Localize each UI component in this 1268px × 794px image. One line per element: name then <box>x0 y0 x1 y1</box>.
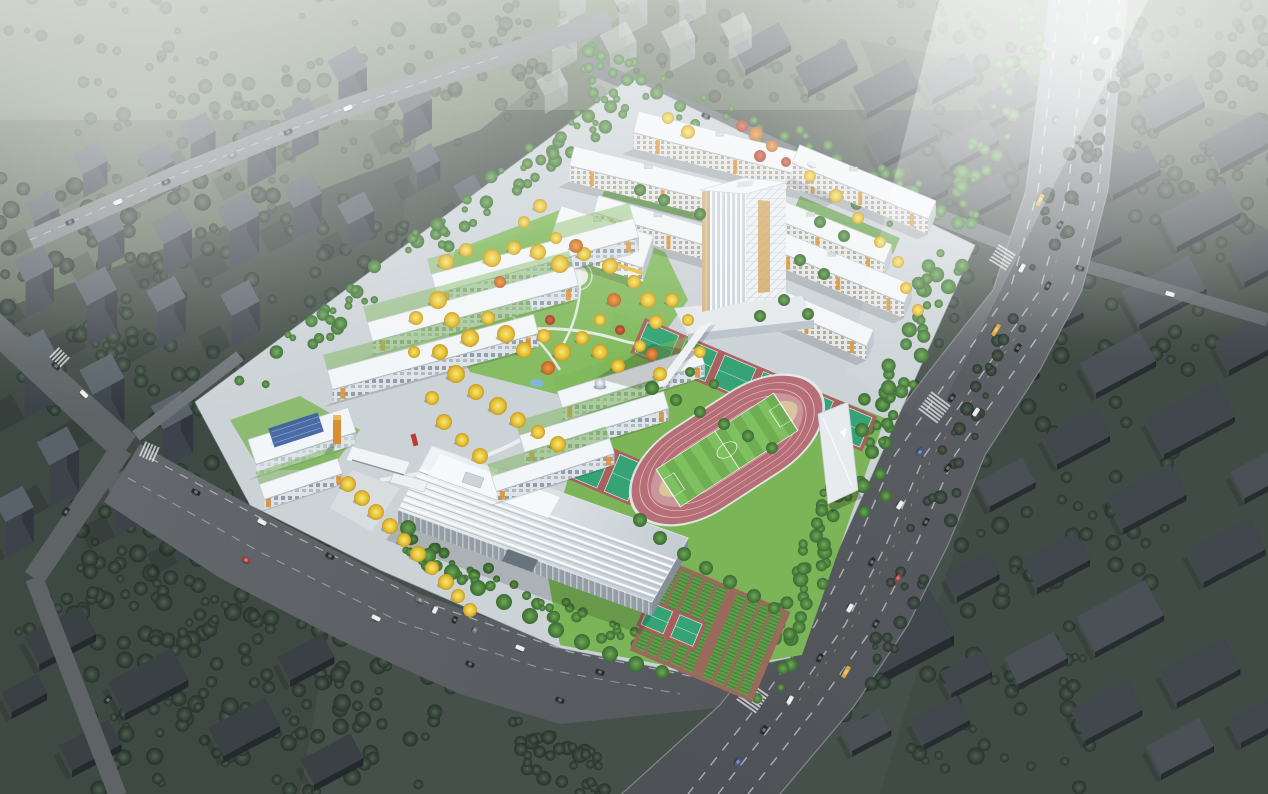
tree <box>295 726 308 739</box>
tree <box>723 575 737 589</box>
tree <box>1079 527 1093 541</box>
tree <box>865 677 879 691</box>
tree <box>221 697 239 715</box>
tree <box>155 594 172 611</box>
tree <box>108 561 121 574</box>
tree <box>120 590 130 600</box>
tree <box>617 632 625 640</box>
dome <box>595 378 606 389</box>
tree <box>797 562 810 575</box>
tree <box>83 666 100 683</box>
tree <box>375 687 384 696</box>
tree <box>893 616 907 630</box>
tree <box>282 708 291 717</box>
tree <box>768 602 780 614</box>
tree <box>1120 416 1132 428</box>
tree <box>1060 757 1069 766</box>
tree <box>1106 535 1122 551</box>
tree <box>1000 753 1009 762</box>
tree <box>548 611 560 623</box>
tree <box>586 777 596 787</box>
tree <box>86 586 99 599</box>
tree <box>514 717 523 726</box>
tree <box>1108 557 1124 573</box>
tree <box>928 493 937 502</box>
tree <box>1059 677 1069 687</box>
tree <box>210 595 219 604</box>
tree <box>809 529 823 543</box>
facade-orange-end <box>606 457 611 466</box>
facade-orange-end <box>695 368 700 378</box>
tree <box>522 608 538 624</box>
tree <box>117 636 131 650</box>
tree <box>907 596 920 609</box>
tree <box>633 513 647 527</box>
tree <box>184 575 196 587</box>
tree <box>315 676 330 691</box>
tree <box>333 719 349 735</box>
tree <box>369 698 382 711</box>
tree <box>938 445 948 455</box>
facade-orange-end <box>266 499 271 507</box>
tree <box>194 702 203 711</box>
tree <box>742 430 754 442</box>
tree <box>538 599 545 606</box>
tree <box>685 367 695 377</box>
tree <box>260 668 273 681</box>
tree <box>881 418 893 430</box>
tree <box>869 632 882 645</box>
scene-canvas <box>0 0 1268 794</box>
tree <box>553 743 565 755</box>
tree <box>550 436 566 452</box>
tree <box>150 635 162 647</box>
tree <box>972 364 982 374</box>
tree <box>970 381 981 392</box>
tree <box>510 412 526 428</box>
tree <box>883 642 893 652</box>
tree <box>1010 565 1019 574</box>
tree <box>376 718 387 729</box>
tree <box>425 391 439 405</box>
tree <box>116 575 124 583</box>
tree <box>116 651 133 668</box>
tree <box>355 712 371 728</box>
tree <box>397 533 411 547</box>
tree <box>272 774 283 785</box>
tree <box>777 662 789 674</box>
tree <box>1079 654 1087 662</box>
tree <box>747 589 761 603</box>
tree <box>611 359 625 373</box>
tree <box>918 574 929 585</box>
tree <box>951 430 957 436</box>
tree <box>340 476 356 492</box>
tree <box>800 585 808 593</box>
tree <box>677 547 691 561</box>
tree <box>1026 761 1036 771</box>
tree <box>221 601 230 610</box>
tree <box>694 406 706 418</box>
tree <box>194 608 206 620</box>
tree <box>545 603 554 612</box>
tree <box>944 514 958 528</box>
tree <box>204 455 220 471</box>
tree <box>489 397 507 415</box>
facade-orange-end <box>500 491 505 500</box>
tree <box>855 423 869 437</box>
tree <box>470 580 486 596</box>
tree <box>155 728 164 737</box>
tree <box>873 654 882 663</box>
tree <box>594 762 603 771</box>
tree <box>960 602 976 618</box>
tree <box>967 747 984 764</box>
tree <box>954 538 969 553</box>
tree <box>129 545 147 563</box>
tree <box>800 598 813 611</box>
tree <box>548 622 564 638</box>
tree <box>985 363 993 371</box>
tree <box>709 379 719 389</box>
facade-orange-end <box>659 412 664 422</box>
tree <box>252 633 263 644</box>
tree <box>352 701 363 712</box>
tree <box>210 657 223 670</box>
tree <box>206 676 218 688</box>
tree <box>991 516 1009 534</box>
tree <box>241 655 253 667</box>
tree <box>152 773 163 784</box>
tree <box>451 589 465 603</box>
facade-orange-end <box>340 388 345 399</box>
tree <box>574 634 590 650</box>
tree <box>301 699 312 710</box>
tree <box>1035 416 1051 432</box>
tree <box>976 529 985 538</box>
tree <box>330 666 347 683</box>
tree <box>533 746 546 759</box>
tree <box>201 597 210 606</box>
tree <box>858 393 871 406</box>
tree <box>163 570 178 585</box>
tree <box>354 490 370 506</box>
tree <box>177 707 193 723</box>
tree <box>310 729 325 744</box>
tree <box>1180 362 1195 377</box>
tree <box>1109 396 1123 410</box>
tree <box>164 698 172 706</box>
tree <box>602 646 618 662</box>
tree <box>766 442 778 454</box>
tree <box>952 488 962 498</box>
tree <box>1088 510 1098 520</box>
tree <box>421 732 430 741</box>
tree <box>1059 383 1067 391</box>
tree <box>996 583 1009 596</box>
tree <box>210 615 219 624</box>
tree <box>528 735 538 745</box>
tree <box>872 644 878 650</box>
tree <box>468 384 484 400</box>
tree <box>655 665 669 679</box>
tree <box>877 676 890 689</box>
tree <box>653 367 667 381</box>
tree <box>15 628 23 636</box>
tree <box>134 582 148 596</box>
tree <box>1061 472 1072 483</box>
tree <box>971 433 978 440</box>
tree <box>1014 702 1028 716</box>
tree <box>129 601 139 611</box>
tree <box>187 644 201 658</box>
tree <box>940 763 950 773</box>
tree <box>718 418 730 430</box>
tree <box>969 725 977 733</box>
tree <box>880 490 892 502</box>
tree <box>61 593 73 605</box>
tree <box>427 704 442 719</box>
tree <box>606 631 616 641</box>
tree <box>1072 780 1086 794</box>
tree <box>410 546 426 562</box>
tree <box>485 581 496 592</box>
tree <box>238 643 251 656</box>
tree <box>531 425 545 439</box>
tree <box>403 731 418 746</box>
tree <box>455 433 469 447</box>
tree <box>178 627 188 637</box>
tree <box>333 694 351 712</box>
tree <box>777 684 784 691</box>
tree <box>541 361 555 375</box>
tree <box>263 681 276 694</box>
tree <box>1057 495 1067 505</box>
tree <box>1132 563 1146 577</box>
tree <box>289 716 300 727</box>
tree <box>569 761 578 770</box>
tree <box>436 414 452 430</box>
tree <box>1020 398 1036 414</box>
tree <box>793 621 806 634</box>
courtyard-pond <box>530 379 544 387</box>
aerial-campus-rendering <box>0 0 1268 794</box>
tree <box>628 656 644 672</box>
tree <box>878 437 886 445</box>
tree <box>351 680 364 693</box>
tree <box>1140 538 1150 548</box>
tree <box>1073 501 1083 511</box>
tree <box>496 594 512 610</box>
tree <box>1160 524 1169 533</box>
tree <box>811 517 823 529</box>
tree <box>865 445 879 459</box>
tree <box>1021 506 1033 518</box>
tree <box>901 582 909 590</box>
tree <box>882 633 892 643</box>
tree <box>817 578 829 590</box>
tree <box>248 610 260 622</box>
tree <box>556 775 569 788</box>
tree <box>447 365 465 383</box>
tree <box>874 468 886 480</box>
tree <box>413 780 423 790</box>
tree <box>265 623 276 634</box>
tree <box>382 518 398 534</box>
tree <box>858 506 870 518</box>
tree <box>523 758 532 767</box>
tree <box>580 749 591 760</box>
tree <box>816 560 827 571</box>
tree <box>798 539 807 548</box>
tree <box>934 751 943 760</box>
tree <box>185 619 193 627</box>
tree <box>1109 470 1122 483</box>
tree <box>596 633 607 644</box>
tree <box>368 504 384 520</box>
tree <box>249 677 260 688</box>
tree <box>118 726 135 743</box>
tree <box>472 448 488 464</box>
tree <box>83 564 98 579</box>
tree <box>953 458 964 469</box>
tree <box>592 752 602 762</box>
tree <box>699 561 713 575</box>
tree <box>586 760 595 769</box>
tree <box>922 757 930 765</box>
tree <box>117 546 127 556</box>
tree <box>919 666 936 683</box>
campanile-cap <box>333 415 341 420</box>
tree <box>425 561 439 575</box>
tree <box>438 574 454 590</box>
tree <box>292 683 306 697</box>
tree <box>670 394 682 406</box>
tree <box>541 730 555 744</box>
tree <box>653 531 667 545</box>
tree <box>906 524 915 533</box>
tree <box>815 504 828 517</box>
tree <box>645 381 659 395</box>
tree <box>146 748 163 765</box>
tree <box>463 603 477 617</box>
campanile-shaft <box>333 418 341 444</box>
tree <box>982 392 989 399</box>
